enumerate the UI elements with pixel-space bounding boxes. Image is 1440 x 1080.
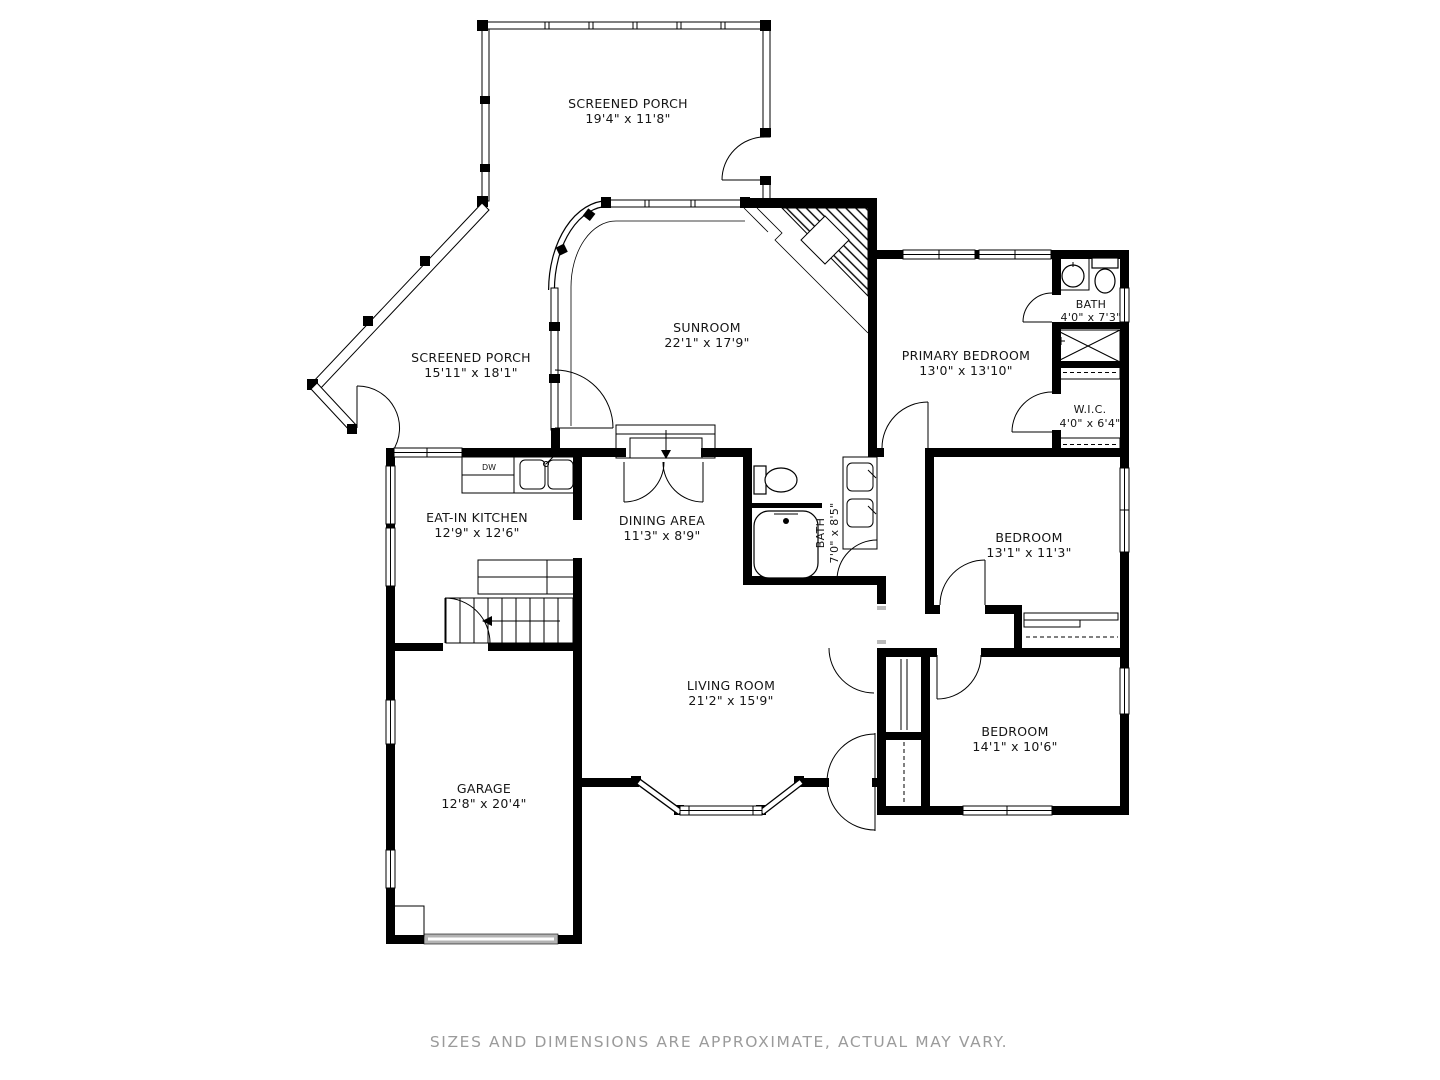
floor-plan-page: SCREENED PORCH 19'4" x 11'8" SUNROOM 22'… <box>0 0 1440 1080</box>
dims-primary-bath: 4'0" x 7'3" <box>1061 311 1122 324</box>
label-dining-area: DINING AREA <box>619 513 705 528</box>
label-dishwasher: DW <box>482 463 496 472</box>
background <box>0 0 1440 1080</box>
dims-garage: 12'8" x 20'4" <box>441 796 526 811</box>
window <box>1120 468 1129 552</box>
window <box>394 448 462 457</box>
window <box>386 528 395 586</box>
dims-dining-area: 11'3" x 8'9" <box>623 528 700 543</box>
label-sunroom: SUNROOM <box>673 320 741 335</box>
toilet-icon <box>754 466 797 494</box>
label-main-bath: BATH <box>814 518 827 548</box>
dims-sunroom: 22'1" x 17'9" <box>664 335 749 350</box>
window <box>963 806 1052 815</box>
disclaimer-text: SIZES AND DIMENSIONS ARE APPROXIMATE, AC… <box>430 1033 1008 1051</box>
label-bedroom-upper: BEDROOM <box>995 530 1062 545</box>
window <box>386 850 395 888</box>
window <box>386 466 395 524</box>
dims-wic: 4'0" x 6'4" <box>1060 417 1121 430</box>
dims-primary-bedroom: 13'0" x 13'10" <box>919 363 1013 378</box>
label-bedroom-lower: BEDROOM <box>981 724 1048 739</box>
passage-jamb <box>877 640 886 644</box>
window <box>386 700 395 744</box>
label-garage: GARAGE <box>457 781 511 796</box>
window <box>903 250 975 259</box>
dims-main-bath: 7'0" x 8'5" <box>828 503 841 564</box>
window <box>979 250 1051 259</box>
dims-living-room: 21'2" x 15'9" <box>688 693 773 708</box>
label-eat-in-kitchen: EAT-IN KITCHEN <box>426 510 528 525</box>
label-wic: W.I.C. <box>1074 403 1107 416</box>
window <box>1120 668 1129 714</box>
label-screened-porch-left: SCREENED PORCH <box>411 350 531 365</box>
dims-bedroom-upper: 13'1" x 11'3" <box>986 545 1071 560</box>
dims-eat-in-kitchen: 12'9" x 12'6" <box>434 525 519 540</box>
dims-screened-porch-top: 19'4" x 11'8" <box>585 111 670 126</box>
label-primary-bath: BATH <box>1076 298 1106 311</box>
dims-bedroom-lower: 14'1" x 10'6" <box>972 739 1057 754</box>
dims-screened-porch-left: 15'11" x 18'1" <box>424 365 518 380</box>
bathtub-icon <box>754 511 818 578</box>
label-living-room: LIVING ROOM <box>687 678 775 693</box>
passage-jamb <box>877 606 886 610</box>
floor-plan-svg: SCREENED PORCH 19'4" x 11'8" SUNROOM 22'… <box>0 0 1440 1080</box>
label-primary-bedroom: PRIMARY BEDROOM <box>902 348 1031 363</box>
garage-door <box>424 934 558 944</box>
label-screened-porch-top: SCREENED PORCH <box>568 96 688 111</box>
